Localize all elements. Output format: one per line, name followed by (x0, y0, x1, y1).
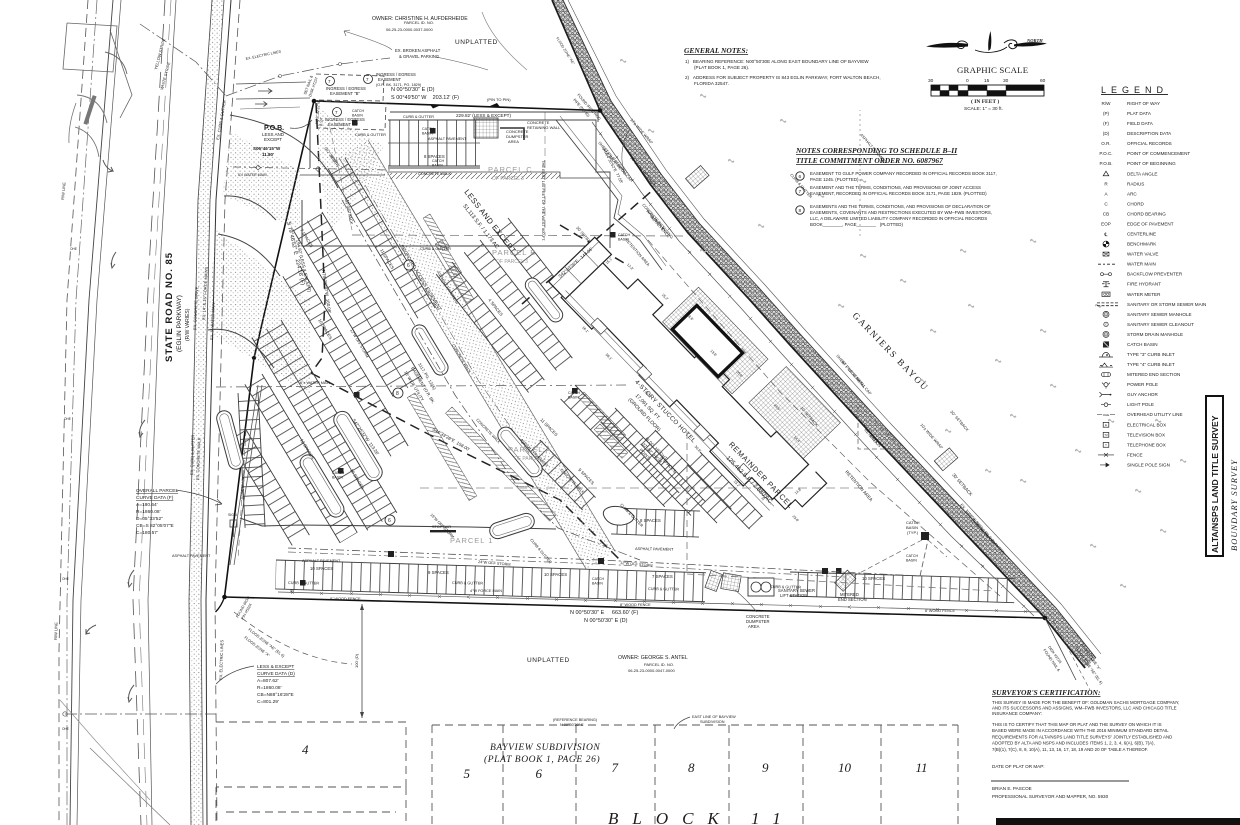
svg-text:LIFT STATION: LIFT STATION (780, 593, 807, 598)
svg-text:CB: CB (1103, 211, 1109, 216)
svg-text:BASIN: BASIN (568, 396, 579, 400)
svg-text:RIGHT OF WAY: RIGHT OF WAY (1127, 101, 1160, 106)
svg-text:BACKFLOW PREVENTER: BACKFLOW PREVENTER (1127, 272, 1183, 277)
svg-text:CATCH: CATCH (906, 554, 919, 558)
svg-text:BASIN: BASIN (432, 164, 443, 168)
svg-text:SUBDIVISION: SUBDIVISION (700, 720, 725, 724)
svg-text:EASEMENT TO GULF POWER COMPANY: EASEMENT TO GULF POWER COMPANY RECORDED … (810, 171, 997, 176)
svg-text:SANITARY SEWER MANHOLE: SANITARY SEWER MANHOLE (1127, 312, 1192, 317)
svg-text:MITERED END SECTION: MITERED END SECTION (1127, 372, 1180, 377)
svg-text:EASEMENT AND THE TERMS, CONDIT: EASEMENT AND THE TERMS, CONDITIONS, AND … (810, 185, 981, 190)
svg-text:EASEMENTS AND THE TERMS, CONDI: EASEMENTS AND THE TERMS, CONDITIONS, AND… (810, 204, 991, 209)
svg-text:BOOK________, PAGE________ (: BOOK________, PAGE________ (PLOTTED) (810, 222, 903, 227)
svg-text:7: 7 (612, 760, 619, 775)
svg-text:N 00°50'30" E 663.60' (F): N 00°50'30" E 663.60' (F) (570, 610, 638, 616)
svg-text:60: 60 (1040, 78, 1046, 84)
svg-text:8: 8 (688, 760, 695, 775)
svg-text:SCALE: 1" = 30 ft.: SCALE: 1" = 30 ft. (964, 106, 1003, 112)
svg-text:TELEPHONE BOX: TELEPHONE BOX (1127, 442, 1166, 447)
svg-text:CATCH: CATCH (422, 127, 435, 131)
svg-text:SINGLE POLE SIGN: SINGLE POLE SIGN (1127, 462, 1170, 467)
svg-text:EASEMENTS, COVENANTS AND RESTR: EASEMENTS, COVENANTS AND RESTRICTIONS EX… (810, 210, 992, 215)
svg-text:CATCH: CATCH (332, 471, 345, 475)
svg-text:GUY ANCHOR: GUY ANCHOR (1127, 392, 1158, 397)
svg-text:1) BEARING REFERENCE: N00°50: 1) BEARING REFERENCE: N00°50'30E ALONG E… (685, 59, 869, 64)
svg-text:EASEMENT, RECORDED IN OFFICIAL: EASEMENT, RECORDED IN OFFICIAL RECORDS B… (810, 191, 987, 196)
svg-text:ASPHALT PAVEMENT: ASPHALT PAVEMENT (302, 559, 341, 563)
svg-text:CATCH BASIN: CATCH BASIN (1127, 342, 1158, 347)
svg-text:(PLAT BOOK 1, PAGE 26).: (PLAT BOOK 1, PAGE 26). (694, 65, 749, 70)
svg-text:229.82' (LESS & EXCEPT): 229.82' (LESS & EXCEPT) (456, 113, 511, 118)
svg-text:TYPE "3" CURB INLET: TYPE "3" CURB INLET (1127, 352, 1175, 357)
svg-text:CURVE DATA (F): CURVE DATA (F) (136, 495, 174, 501)
svg-text:BENCHMARK: BENCHMARK (1127, 242, 1157, 247)
svg-text:ASPHALT PAVEMENT: ASPHALT PAVEMENT (428, 137, 467, 141)
svg-text:ASPHALT PAVEMENT: ASPHALT PAVEMENT (635, 547, 674, 552)
svg-text:S 00°49'50" W 203.12' (F): S 00°49'50" W 203.12' (F) (391, 95, 459, 101)
svg-text:6: 6 (536, 766, 543, 781)
svg-text:CURB & GUTTER: CURB & GUTTER (452, 581, 483, 586)
svg-text:ASPHALT PAVEMENT: ASPHALT PAVEMENT (172, 554, 211, 558)
svg-text:ALTA/NSPS LAND TITLE SURVEY: ALTA/NSPS LAND TITLE SURVEY (1210, 415, 1220, 553)
svg-text:& GRAVEL PARKING: & GRAVEL PARKING (399, 54, 439, 59)
svg-text:INSURANCE COMPANY:: INSURANCE COMPANY: (992, 711, 1042, 716)
svg-text:UNPLATTED: UNPLATTED (455, 39, 498, 46)
svg-text:D=05°33'52": D=05°33'52" (136, 516, 163, 522)
svg-text:P.O.C.: P.O.C. (1099, 151, 1112, 156)
svg-text:OVERALL PARCEL: OVERALL PARCEL (136, 488, 178, 494)
svg-text:4: 4 (302, 742, 309, 757)
svg-text:OVERHEAD UTILITY LINE: OVERHEAD UTILITY LINE (1127, 412, 1183, 417)
svg-text:AREA: AREA (508, 139, 519, 144)
svg-text:THIS IS TO CERTIFY THAT THIS M: THIS IS TO CERTIFY THAT THIS MAP OR PLAT… (992, 722, 1162, 727)
svg-text:OHE: OHE (62, 727, 69, 731)
svg-text:LIGHT POLE: LIGHT POLE (1127, 402, 1154, 407)
svg-text:R=1860.08': R=1860.08' (136, 509, 161, 515)
svg-text:(TYP.): (TYP.) (907, 530, 919, 535)
svg-text:LLC, A DELAWARE LIMITED LIABIL: LLC, A DELAWARE LIMITED LIABILITY COMPAN… (810, 216, 987, 221)
svg-text:30: 30 (928, 78, 934, 84)
svg-text:8" WOOD FENCE: 8" WOOD FENCE (330, 597, 361, 601)
svg-text:REQUIREMENTS FOR ALTA/NSPS LAN: REQUIREMENTS FOR ALTA/NSPS LAND TITLE SU… (992, 734, 1172, 739)
svg-text:E: E (1105, 423, 1107, 427)
svg-text:CHORD: CHORD (1127, 201, 1145, 206)
svg-text:CURB & GUTTER: CURB & GUTTER (403, 115, 434, 119)
svg-text:FENCE: FENCE (1127, 452, 1143, 457)
svg-text:PARCEL ID. NO.: PARCEL ID. NO. (404, 20, 434, 25)
svg-text:PROFESSIONAL SURVEYOR AND MAPP: PROFESSIONAL SURVEYOR AND MAPPER, NO. 59… (992, 794, 1109, 799)
svg-text:PARCEL B: PARCEL B (492, 248, 536, 257)
svg-text:2) ADDRESS FOR SUBJECT PROPE: 2) ADDRESS FOR SUBJECT PROPERTY IS 843 E… (685, 75, 881, 80)
svg-text:N 00°50'30" E (D): N 00°50'30" E (D) (584, 618, 628, 624)
svg-text:(REFERENCE BEARING): (REFERENCE BEARING) (553, 718, 598, 722)
svg-text:11: 11 (916, 760, 928, 775)
svg-text:06-25-23-0000-0047-0000: 06-25-23-0000-0047-0000 (628, 668, 675, 673)
svg-text:15: 15 (984, 78, 990, 84)
svg-text:A=180.64': A=180.64' (136, 502, 158, 508)
svg-text:CENTERLINE: CENTERLINE (1127, 232, 1156, 237)
svg-text:THIS SURVEY IS MADE FOR THE BE: THIS SURVEY IS MADE FOR THE BENEFIT OF: … (992, 700, 1179, 705)
svg-text:7: 7 (799, 189, 802, 195)
svg-text:BASIN: BASIN (906, 559, 917, 563)
svg-text:BRIAN E. PASCOE: BRIAN E. PASCOE (992, 786, 1032, 791)
svg-text:STORM DRAIN MANHOLE: STORM DRAIN MANHOLE (1127, 332, 1183, 337)
svg-text:BAYVIEW SUBDIVISION: BAYVIEW SUBDIVISION (490, 743, 600, 753)
svg-text:6"x WATER MAIN: 6"x WATER MAIN (300, 381, 331, 385)
svg-text:OHE: OHE (70, 247, 77, 251)
svg-text:T: T (1105, 443, 1107, 447)
svg-text:WATER METER: WATER METER (1127, 292, 1161, 297)
svg-text:STATE ROAD NO. 85: STATE ROAD NO. 85 (164, 252, 175, 362)
svg-text:SURVEYOR'S CERTIFICATION:: SURVEYOR'S CERTIFICATION: (992, 688, 1100, 697)
svg-text:11.80': 11.80' (262, 152, 274, 157)
svg-text:POINT OF COMMENCEMENT: POINT OF COMMENCEMENT (1127, 151, 1190, 156)
svg-text:8 SPACES: 8 SPACES (640, 518, 661, 523)
svg-text:C=801.29': C=801.29' (257, 699, 279, 705)
svg-text:(F): (F) (1103, 121, 1109, 126)
svg-text:DATE OF PLAT OR MAP:: DATE OF PLAT OR MAP: (992, 764, 1045, 769)
svg-text:OF PARCEL 3: OF PARCEL 3 (496, 259, 528, 265)
svg-text:6: 6 (388, 518, 391, 524)
svg-text:PARCEL C: PARCEL C (488, 165, 533, 174)
svg-text:TITLE COMMITMENT ORDER NO.: TITLE COMMITMENT ORDER NO. 6087967 (796, 156, 943, 165)
svg-text:(PLAT BOOK 1, PAGE 26): (PLAT BOOK 1, PAGE 26) (484, 754, 600, 765)
svg-text:5: 5 (464, 766, 471, 781)
svg-text:(PIN TO PIN): (PIN TO PIN) (487, 97, 511, 102)
svg-text:(EGLIN PARKWAY): (EGLIN PARKWAY) (176, 295, 183, 352)
svg-text:ARC: ARC (1127, 191, 1137, 196)
svg-text:OHE: OHE (64, 417, 71, 421)
svg-text:100' (D): 100' (D) (354, 653, 359, 668)
svg-text:R=1860.08': R=1860.08' (257, 685, 282, 691)
svg-text:PAGE 1245. (PLOTTED): PAGE 1245. (PLOTTED) (810, 177, 859, 182)
svg-text:POINT OF BEGINNING: POINT OF BEGINNING (1127, 161, 1176, 166)
svg-text:8.24': 8.24' (318, 117, 324, 126)
svg-text:BASIN: BASIN (422, 132, 433, 136)
svg-text:FIRE HYDRANT: FIRE HYDRANT (1127, 282, 1161, 287)
svg-text:OHE: OHE (62, 577, 69, 581)
svg-text:CURVE DATA (D): CURVE DATA (D) (257, 671, 295, 677)
svg-text:FIELD DATA: FIELD DATA (1127, 121, 1154, 126)
svg-text:10 SPACES: 10 SPACES (544, 572, 567, 577)
svg-text:CATCH: CATCH (432, 159, 445, 163)
svg-text:PARCEL 1: PARCEL 1 (450, 536, 493, 545)
svg-text:CURB & GUTTER: CURB & GUTTER (355, 133, 386, 137)
svg-text:8: 8 (799, 208, 802, 214)
svg-text:FLORIDA 32547.: FLORIDA 32547. (694, 81, 729, 86)
svg-text:POWER POLE: POWER POLE (1127, 382, 1158, 387)
svg-text:END SECTION: END SECTION (838, 597, 867, 602)
svg-text:EASEMENT "A": EASEMENT "A" (328, 122, 358, 127)
svg-text:GRAPHIC SCALE: GRAPHIC SCALE (957, 65, 1028, 75)
svg-text:BASIN: BASIN (618, 238, 629, 242)
svg-text:10 SPACES: 10 SPACES (310, 566, 333, 571)
svg-text:P.O.B.: P.O.B. (1100, 161, 1113, 166)
svg-text:EAST LINE OF BAYVIEW: EAST LINE OF BAYVIEW (692, 715, 736, 719)
svg-text:UNPLATTED: UNPLATTED (527, 657, 570, 664)
svg-text:EXCEPT: EXCEPT (264, 137, 282, 142)
svg-text:EASEMENT: EASEMENT (378, 77, 401, 82)
svg-text:AREA: AREA (748, 624, 760, 629)
svg-text:BLOCK 11: BLOCK 11 (608, 809, 795, 825)
svg-text:N 00°50'30" E: N 00°50'30" E (560, 723, 584, 727)
svg-text:OWNER: GEORGE S. ANTEL: OWNER: GEORGE S. ANTEL (618, 655, 688, 661)
svg-text:PLAT DATA: PLAT DATA (1127, 111, 1152, 116)
svg-text:( IN FEET ): ( IN FEET ) (971, 98, 999, 105)
svg-text:CATCH: CATCH (568, 391, 581, 395)
svg-text:TV: TV (1104, 433, 1108, 437)
svg-text:WATER MAIN: WATER MAIN (1127, 262, 1156, 267)
svg-text:LEGEND: LEGEND (1101, 85, 1168, 95)
svg-text:O.R.: O.R. (1101, 141, 1110, 146)
svg-text:BASED WERE MADE IN ACCORDANCE: BASED WERE MADE IN ACCORDANCE WITH THE 2… (992, 728, 1169, 733)
svg-text:0: 0 (966, 78, 969, 84)
svg-text:C=180.57': C=180.57' (136, 530, 158, 536)
svg-text:8: 8 (396, 391, 399, 397)
svg-text:EOP: EOP (1101, 222, 1111, 227)
svg-text:EX. BROKEN ASPHALT: EX. BROKEN ASPHALT (395, 48, 441, 53)
svg-text:(R/W VARIES): (R/W VARIES) (185, 308, 191, 341)
svg-text:S: S (1105, 312, 1107, 316)
svg-text:RADIUS: RADIUS (1127, 181, 1144, 186)
svg-text:7(B)(1), 7(C), 8, 9, 10(A), 11: 7(B)(1), 7(C), 8, 9, 10(A), 11, 13, 16, … (992, 747, 1148, 752)
svg-text:TYPE "4" CURB INLET: TYPE "4" CURB INLET (1127, 362, 1175, 367)
svg-text:10 SPACES: 10 SPACES (862, 576, 885, 581)
svg-text:A=807.62': A=807.62' (257, 678, 279, 684)
svg-text:SANITARY SEWER CLEANOUT: SANITARY SEWER CLEANOUT (1127, 322, 1194, 327)
svg-text:STOP BAR: STOP BAR (432, 525, 451, 529)
svg-text:9 SPACES: 9 SPACES (428, 570, 449, 575)
svg-text:NOTES CORRESPONDING TO SCHE: NOTES CORRESPONDING TO SCHEDULE B–II (795, 146, 958, 155)
svg-text:7 SPACES: 7 SPACES (652, 574, 673, 579)
svg-text:BASIN: BASIN (352, 114, 363, 118)
svg-text:LESS & EXCEPT: LESS & EXCEPT (257, 664, 294, 670)
svg-text:(P): (P) (1103, 111, 1110, 116)
svg-text:GENERAL NOTES:: GENERAL NOTES: (684, 46, 748, 55)
svg-text:30: 30 (1003, 78, 1009, 84)
svg-text:CB=N88°16'28"E: CB=N88°16'28"E (257, 692, 294, 698)
svg-text:6"x WATER MAIN: 6"x WATER MAIN (238, 173, 267, 177)
svg-text:BOUNDARY SURVEY: BOUNDARY SURVEY (1229, 459, 1239, 551)
svg-text:CONCRETE WALK: CONCRETE WALK (418, 172, 451, 176)
svg-text:6: 6 (799, 174, 802, 180)
svg-text:BASIN: BASIN (592, 582, 603, 586)
svg-text:CHORD BEARING: CHORD BEARING (1127, 211, 1166, 216)
svg-text:CURB & GUTTER: CURB & GUTTER (770, 585, 801, 590)
svg-text:R/W LINE: R/W LINE (53, 622, 59, 640)
svg-text:CURB & GUTTER: CURB & GUTTER (648, 587, 679, 592)
svg-text:CATCH: CATCH (592, 577, 605, 581)
svg-text:DELTA ANGLE: DELTA ANGLE (1127, 171, 1157, 176)
svg-text:CATCH: CATCH (352, 109, 365, 113)
svg-text:D: D (1105, 332, 1107, 336)
svg-text:S06°46'15"W: S06°46'15"W (253, 146, 281, 151)
svg-text:N 00°50'30" E (D): N 00°50'30" E (D) (391, 87, 435, 93)
svg-text:9: 9 (762, 760, 769, 775)
svg-text:ELECTRICAL BOX: ELECTRICAL BOX (1127, 422, 1166, 427)
svg-text:4"W FORCE MAIN: 4"W FORCE MAIN (470, 589, 502, 593)
svg-text:06-25-23-0000-0037-0000: 06-25-23-0000-0037-0000 (386, 27, 433, 32)
svg-text:(D): (D) (1103, 131, 1110, 136)
svg-text:P.O.B.: P.O.B. (264, 125, 284, 132)
svg-text:RETAINING WALL: RETAINING WALL (527, 125, 561, 130)
svg-text:OFFICIAL RECORDS: OFFICIAL RECORDS (1127, 141, 1172, 146)
svg-text:CURB & GUTTER: CURB & GUTTER (288, 581, 319, 586)
svg-text:OF PARCEL 3: OF PARCEL 3 (492, 176, 524, 182)
svg-text:8" WOOD FENCE: 8" WOOD FENCE (620, 603, 651, 607)
svg-text:CATCH: CATCH (618, 233, 631, 237)
svg-text:PARCEL ID. NO.: PARCEL ID. NO. (644, 662, 674, 667)
svg-text:CURB & GUTTER: CURB & GUTTER (420, 247, 451, 251)
svg-text:OHE: OHE (1103, 413, 1110, 417)
svg-text:SIGN: SIGN (228, 513, 237, 517)
svg-text:EDGE OF PAVEMENT: EDGE OF PAVEMENT (1127, 222, 1174, 227)
svg-text:CB=S 82°05'07"E: CB=S 82°05'07"E (136, 523, 174, 529)
svg-text:10: 10 (838, 760, 852, 775)
svg-text:R/W: R/W (1102, 101, 1112, 106)
svg-text:DESCRIPTION DATA: DESCRIPTION DATA (1127, 131, 1172, 136)
svg-text:C: C (1105, 322, 1107, 326)
svg-text:TELEVISION BOX: TELEVISION BOX (1127, 432, 1165, 437)
svg-text:WATER VALVE: WATER VALVE (1127, 252, 1158, 257)
svg-text:THE EAST 100 FEET OF THE WEST: THE EAST 100 FEET OF THE WEST 600 FT. (541, 160, 546, 241)
svg-text:SANITARY OR STORM SEWER MAIN: SANITARY OR STORM SEWER MAIN (1127, 302, 1206, 307)
svg-text:EASEMENT "B": EASEMENT "B" (330, 91, 360, 96)
svg-text:BASIN: BASIN (332, 476, 343, 480)
svg-text:NORTH: NORTH (1026, 38, 1043, 43)
svg-text:ADOPTED BY ALTA AND NSPS AND I: ADOPTED BY ALTA AND NSPS AND INCLUDES IT… (992, 741, 1155, 746)
svg-text:AND ITS SUCCESSORS AND ASSIGNS: AND ITS SUCCESSORS AND ASSIGNS, WM–FWB I… (992, 706, 1177, 711)
